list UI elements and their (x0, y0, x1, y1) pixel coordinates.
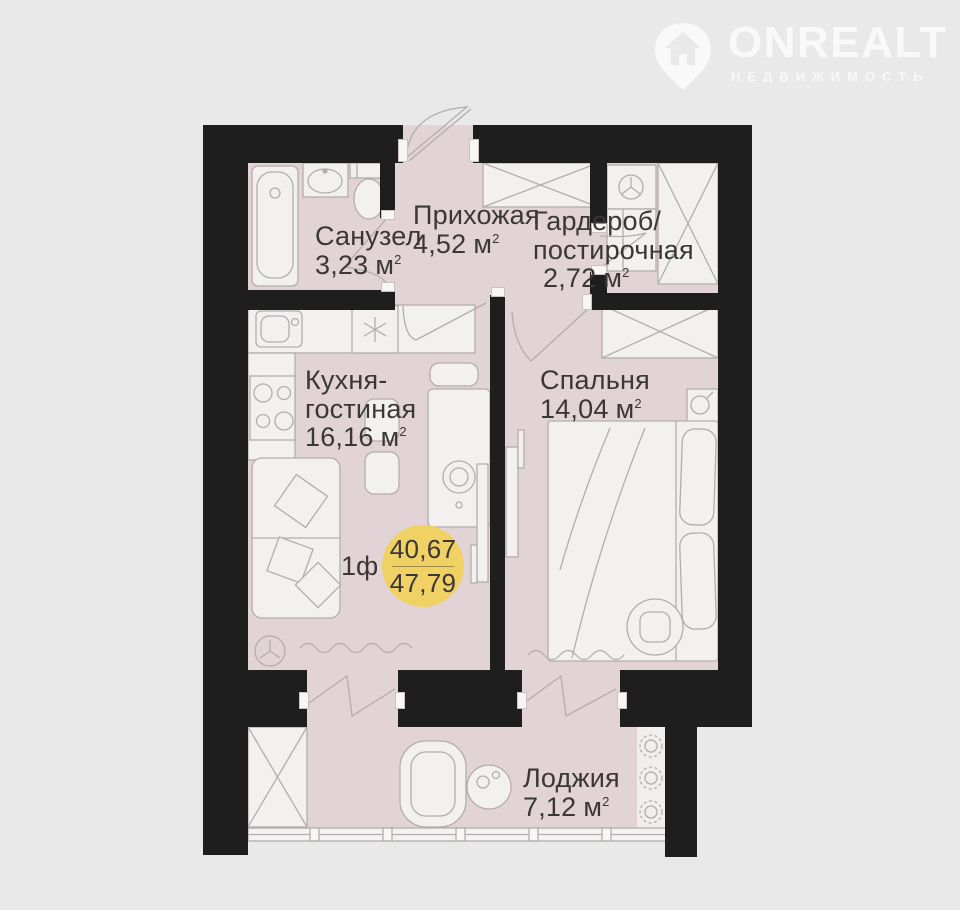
bathtub-icon (252, 166, 298, 286)
desk-chair-icon (627, 599, 683, 655)
sink-icon (303, 163, 348, 197)
rug-wave (300, 644, 412, 653)
plant-gear-icon (640, 735, 662, 823)
door-jamb (382, 283, 394, 291)
wall (620, 670, 752, 727)
kitchen-sink-icon (256, 311, 302, 347)
stove-icon (250, 376, 295, 440)
room-label-loggia: Лоджия 7,12м2 (523, 764, 620, 821)
wall (718, 125, 752, 670)
wall (590, 293, 752, 310)
room-label-bathroom: Санузел 3,23м2 (315, 222, 422, 279)
wall (380, 163, 395, 218)
wall-lamp-icon (687, 389, 718, 423)
wall (490, 295, 505, 670)
room-area: 16,16 (305, 422, 374, 452)
wall (203, 125, 248, 855)
door-jamb (396, 693, 404, 708)
room-label-bedroom: Спальня 14,04м2 (540, 366, 650, 423)
room-area: 3,23 (315, 250, 368, 280)
wall (248, 290, 395, 310)
chair-icon (365, 452, 399, 494)
sofa-icon (252, 458, 341, 618)
door-jamb (399, 140, 407, 161)
loggia-table-icon (467, 765, 511, 809)
loggia-glazing (248, 828, 667, 841)
wall (248, 670, 307, 727)
room-area: 14,04 (540, 394, 609, 424)
loggia-chair-icon (400, 741, 466, 827)
door-jamb (583, 295, 591, 309)
chair-icon (430, 363, 478, 386)
room-area: 2,72 (543, 263, 596, 293)
wall (398, 670, 522, 727)
wall (665, 727, 697, 857)
room-label-hallway: Прихожая 4,52м2 (413, 201, 540, 258)
door-jamb (618, 693, 626, 708)
bedroom-wardrobe-icon (602, 305, 718, 358)
living-area-value: 40,67 (390, 535, 457, 563)
washing-machine-icon (607, 165, 656, 209)
total-area-value: 47,79 (390, 569, 457, 597)
door-jamb (492, 288, 504, 296)
room-area: 7,12 (523, 792, 576, 822)
room-label-wardrobe: Гардероб/ постирочная 2,72м2 (533, 207, 694, 293)
area-badge: 40,67 47,79 (382, 525, 464, 607)
room-area: 4,52 (413, 229, 466, 259)
floor-plan: ONREALT НЕДВИЖИМОСТЬ (0, 0, 960, 910)
wall (473, 125, 752, 163)
plant-icon (255, 636, 285, 666)
door-jamb (300, 693, 308, 708)
badge-divider (392, 566, 454, 567)
door-jamb (470, 140, 478, 161)
floor-number-label: 1ф (341, 551, 378, 582)
fridge-icon (352, 306, 398, 353)
door-jamb (382, 211, 394, 219)
room-label-kitchen: Кухня- гостиная 16,16м2 (305, 366, 416, 452)
loggia-wardrobe-icon (248, 727, 307, 827)
door-jamb (518, 693, 526, 708)
